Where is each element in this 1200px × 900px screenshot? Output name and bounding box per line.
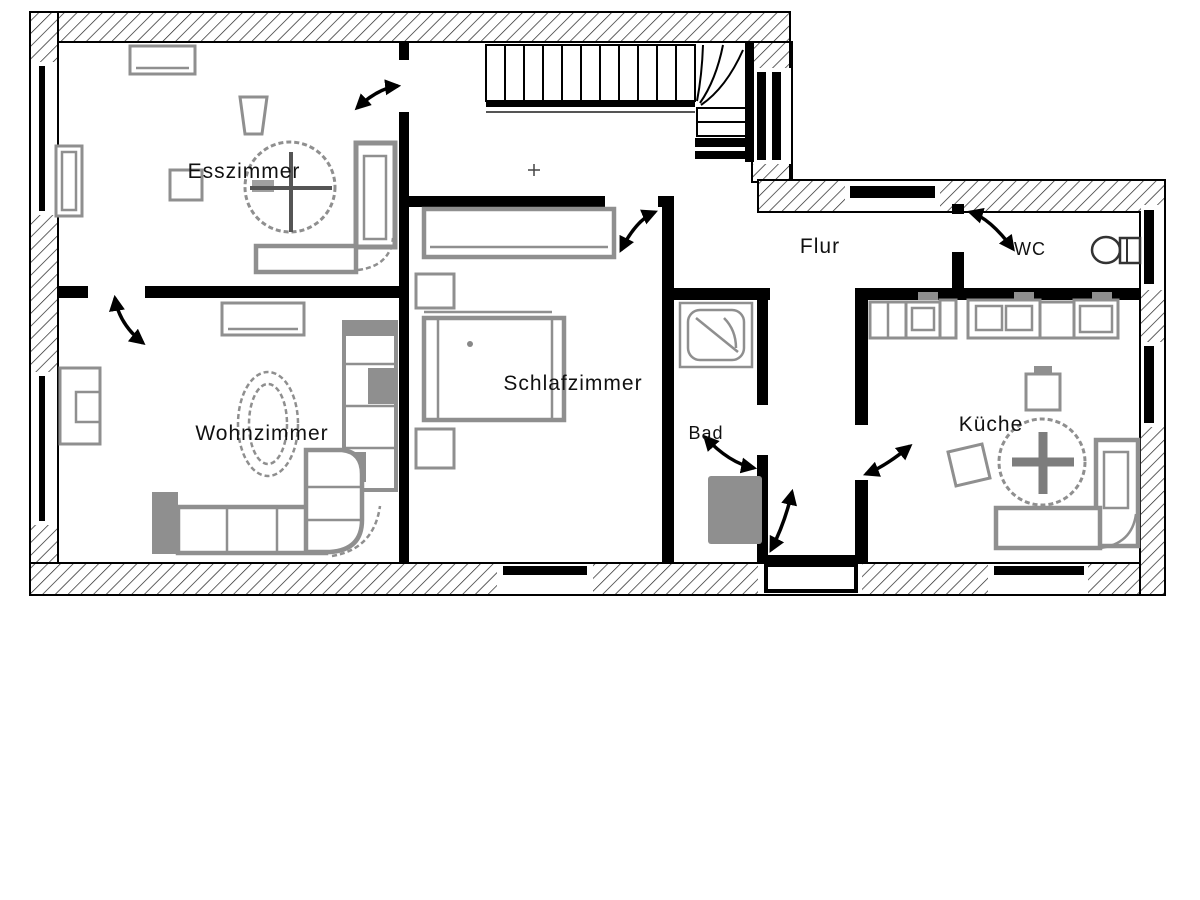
wall-esszimmer-hall-b <box>399 112 409 300</box>
room-label-kueche: Küche <box>959 413 1024 436</box>
window-left-wohnzimmer <box>31 372 57 525</box>
window-top-flur <box>845 181 940 211</box>
window-left-esszimmer <box>31 62 57 215</box>
wall-esszimmer-wohnzimmer-a <box>58 286 88 298</box>
schlafzimmer-furniture <box>416 209 614 468</box>
wall-schlafzimmer-top-a <box>409 196 605 207</box>
wc-furniture <box>1092 237 1140 263</box>
floor-plan: Esszimmer Wohnzimmer Schlafzimmer Flur W… <box>0 0 1200 900</box>
wall-bad-flur-a <box>757 288 768 405</box>
plus-mark <box>528 164 540 176</box>
shower-icon <box>680 303 752 367</box>
room-label-wohnzimmer: Wohnzimmer <box>195 422 328 445</box>
stair-winder <box>697 45 703 101</box>
entrance-door <box>758 555 862 594</box>
chair-icon <box>948 444 990 486</box>
cabinet-icon <box>356 143 395 247</box>
door-arrow-wc <box>970 212 1013 249</box>
esszimmer-furniture <box>56 46 395 272</box>
door-arrow-esszimmer <box>357 86 398 108</box>
window-right-wc <box>1141 205 1164 290</box>
wall-schlafzimmer-bad <box>662 196 674 563</box>
washing-machine-icon <box>708 476 762 544</box>
staircase <box>486 42 754 162</box>
toilet-icon <box>1092 237 1140 263</box>
window-stair <box>753 68 791 164</box>
floor-plan-drawing: Esszimmer Wohnzimmer Schlafzimmer Flur W… <box>0 0 1200 900</box>
nightstand-icon <box>416 429 454 468</box>
room-label-bad: Bad <box>688 423 723 443</box>
tv-cabinet-icon <box>60 368 100 444</box>
chair-icon <box>240 97 267 134</box>
sideboard-icon <box>56 146 82 216</box>
door-arrow-entrance <box>771 492 792 550</box>
stair-stringer <box>486 101 695 107</box>
wall-wc-left-b <box>952 252 964 288</box>
wall-wc-left-a <box>952 204 964 214</box>
bed-icon <box>424 312 564 420</box>
wall-wohnzimmer-schlafzimmer <box>399 298 409 563</box>
room-label-esszimmer: Esszimmer <box>188 160 301 183</box>
sofa-icon <box>152 450 380 556</box>
window-right-kueche <box>1141 342 1164 427</box>
window-bottom-kueche <box>988 564 1088 594</box>
wall-flur-kueche-a <box>855 300 868 425</box>
room-label-wc: WC <box>1014 239 1046 259</box>
door-arrow-schlafzimmer <box>621 212 655 250</box>
corner-bench-icon <box>256 246 356 272</box>
window-bottom-schlafzimmer <box>497 564 593 594</box>
room-label-schlafzimmer: Schlafzimmer <box>503 372 642 395</box>
entrance-step <box>766 565 856 591</box>
wall-bad-top <box>674 288 770 300</box>
outer-wall-top <box>30 12 790 42</box>
sideboard-icon <box>130 46 195 74</box>
wall-flur-kueche-b <box>855 480 868 563</box>
chair-icon <box>1026 374 1060 410</box>
room-label-flur: Flur <box>800 235 840 258</box>
nightstand-icon <box>416 274 454 308</box>
door-arrow-wohnzimmer <box>115 298 143 343</box>
wardrobe-icon <box>424 209 614 257</box>
wall-esszimmer-wohnzimmer-b <box>145 286 399 298</box>
door-arrow-kueche <box>866 446 910 474</box>
wall-esszimmer-hall-a <box>399 42 409 60</box>
